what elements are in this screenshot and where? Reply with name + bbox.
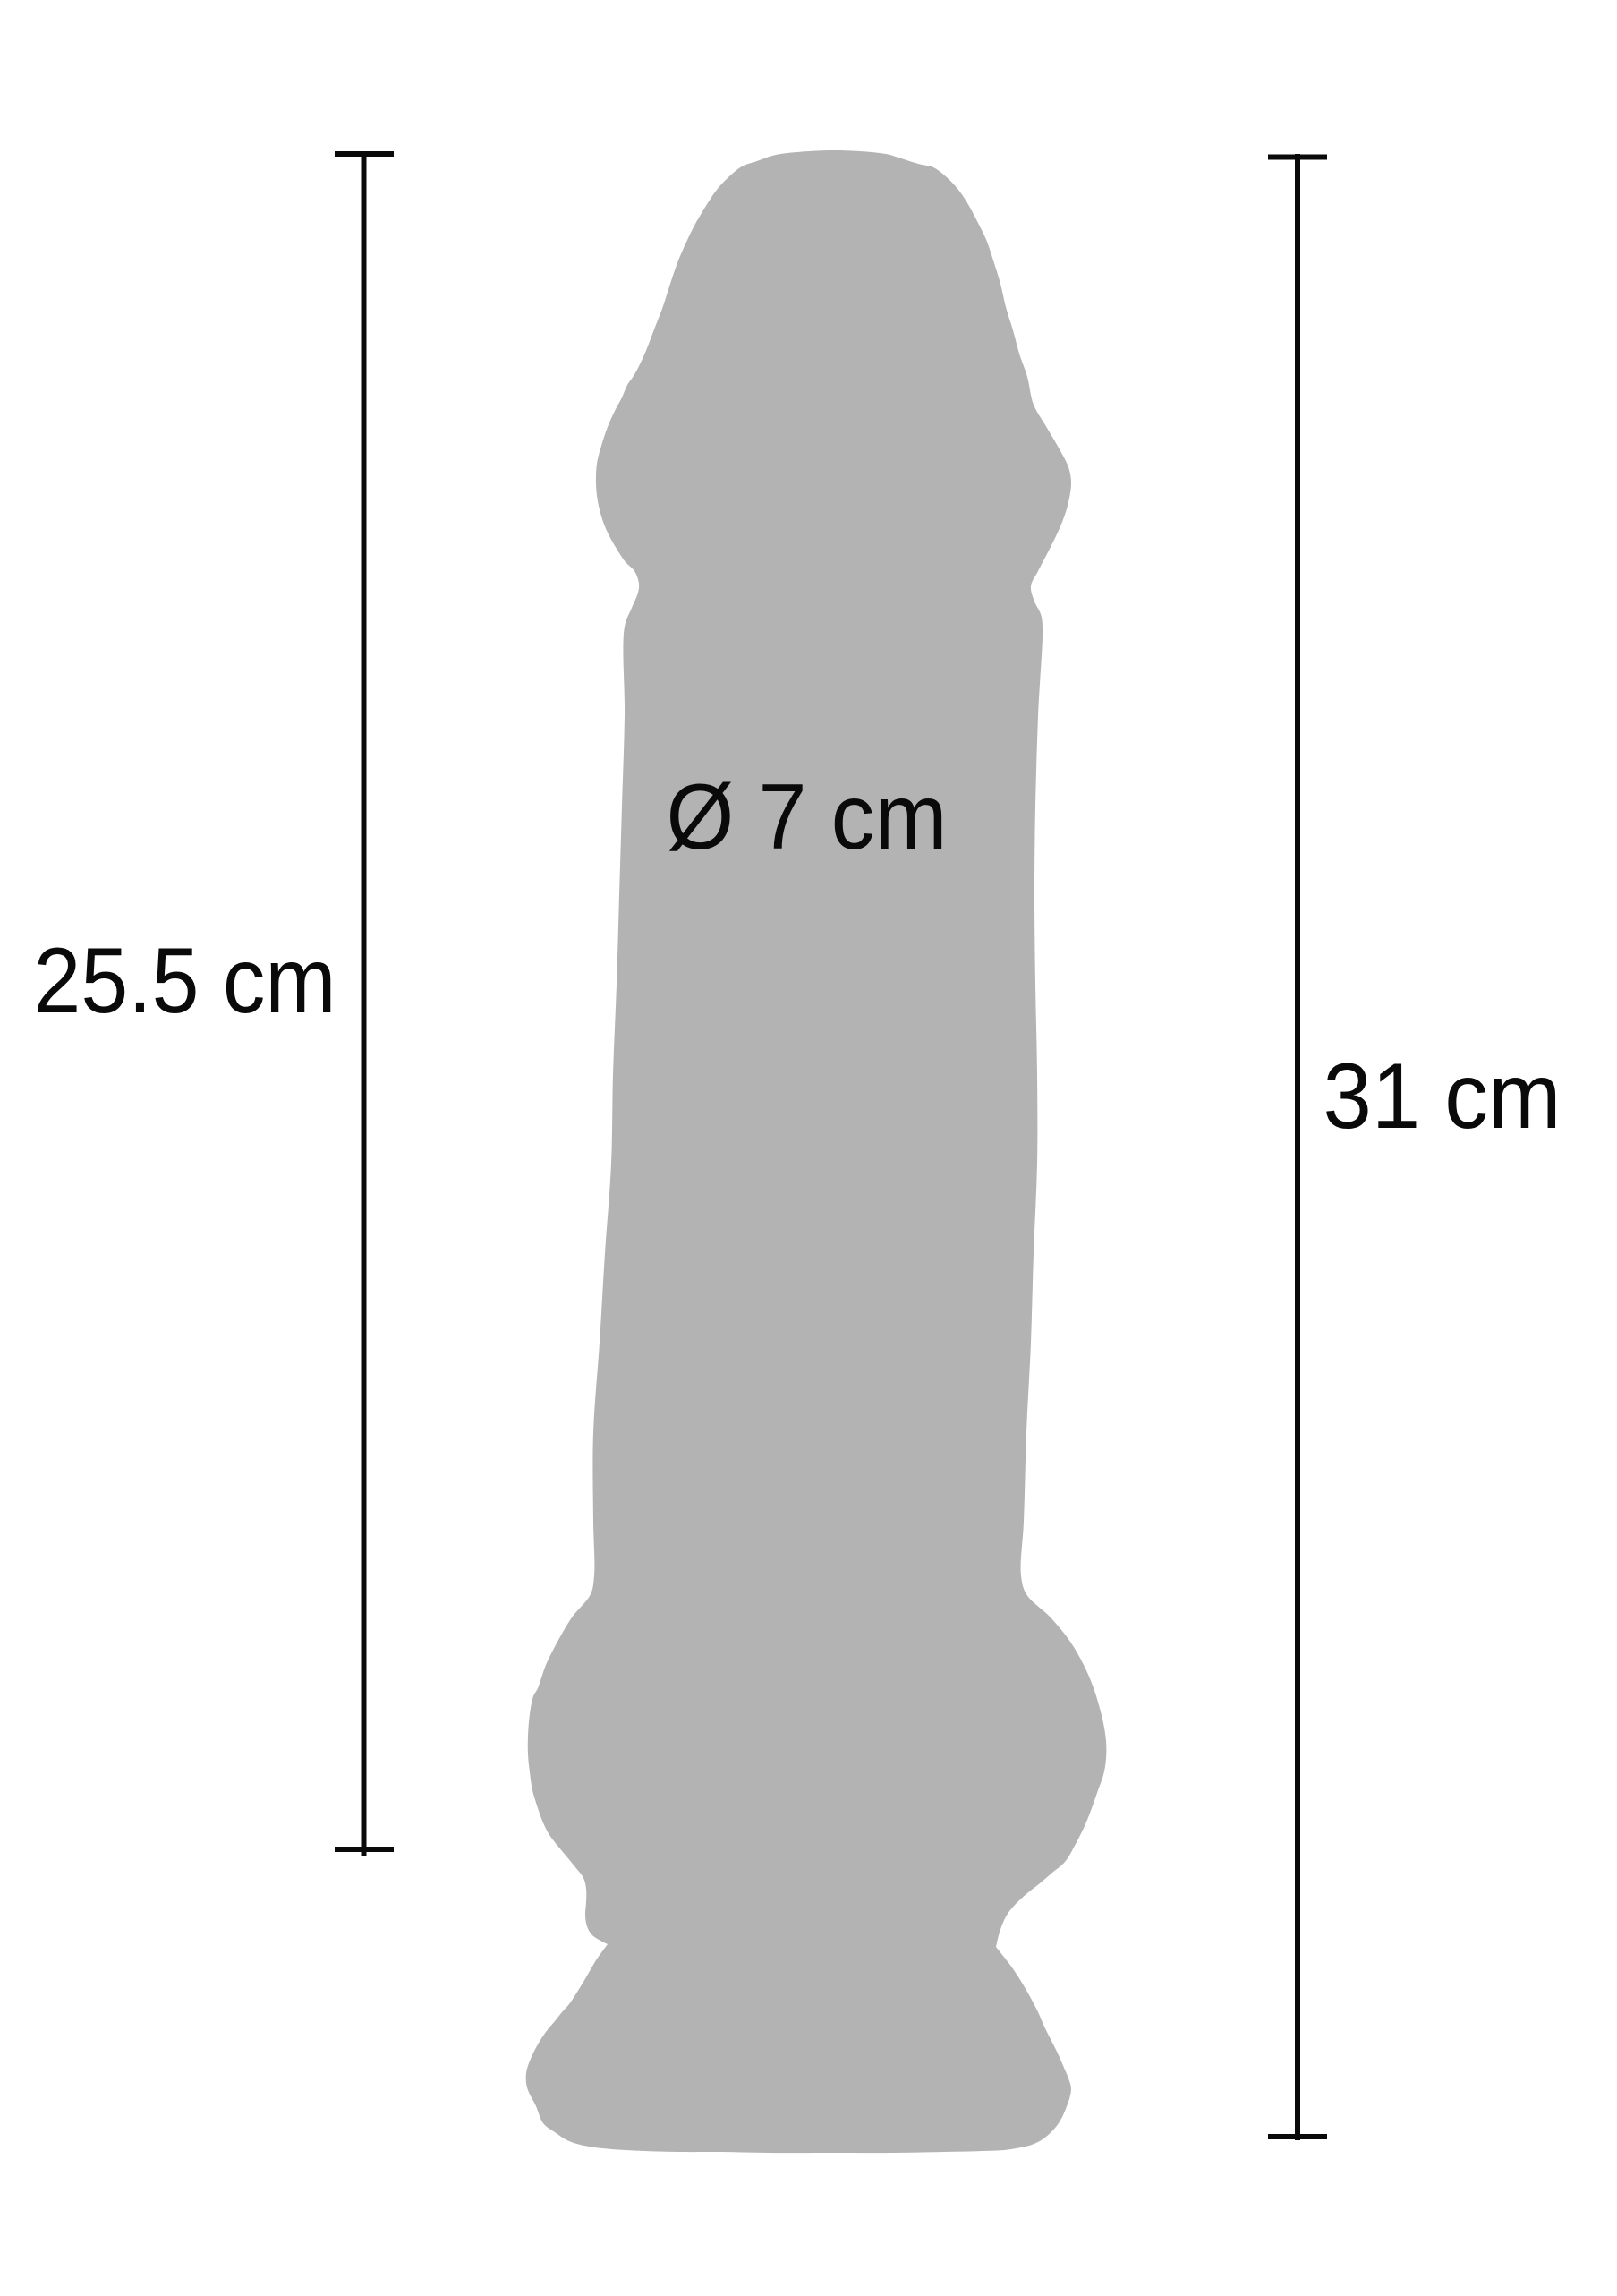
svg-text:31 cm: 31 cm [1323, 1045, 1562, 1148]
svg-text:Ø 7 cm: Ø 7 cm [667, 765, 948, 869]
svg-text:25.5 cm: 25.5 cm [34, 929, 336, 1033]
